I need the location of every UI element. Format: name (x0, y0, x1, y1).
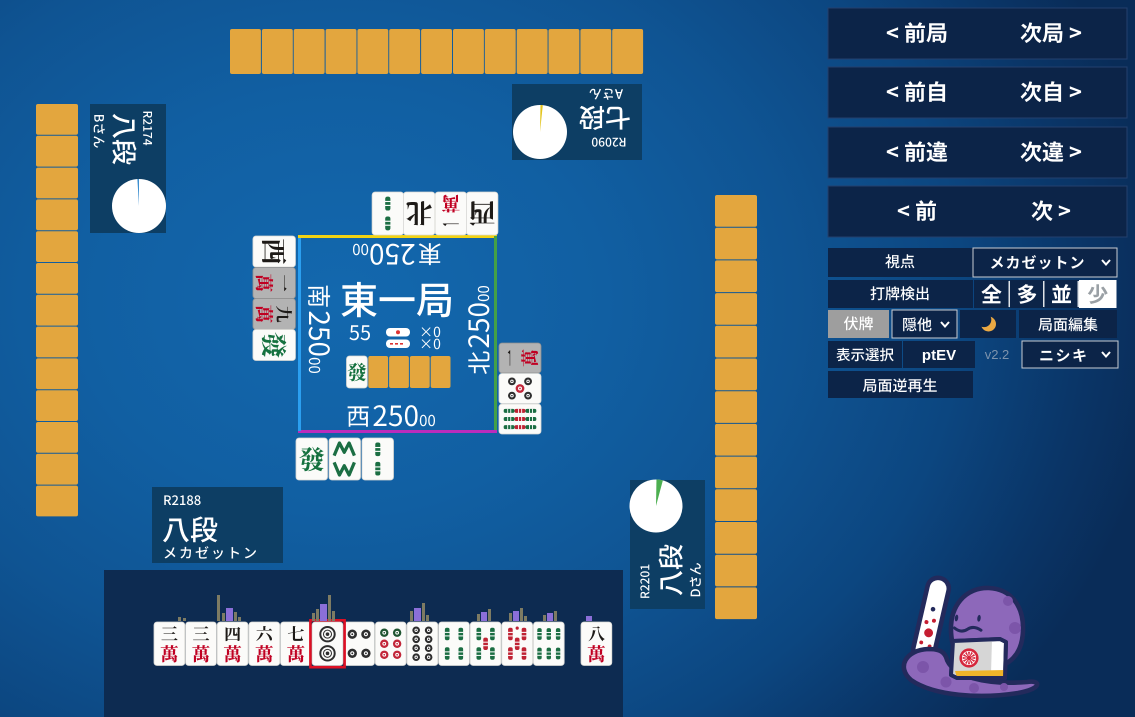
svg-text:v2.2: v2.2 (985, 347, 1010, 362)
svg-text:ptEV: ptEV (922, 347, 956, 364)
